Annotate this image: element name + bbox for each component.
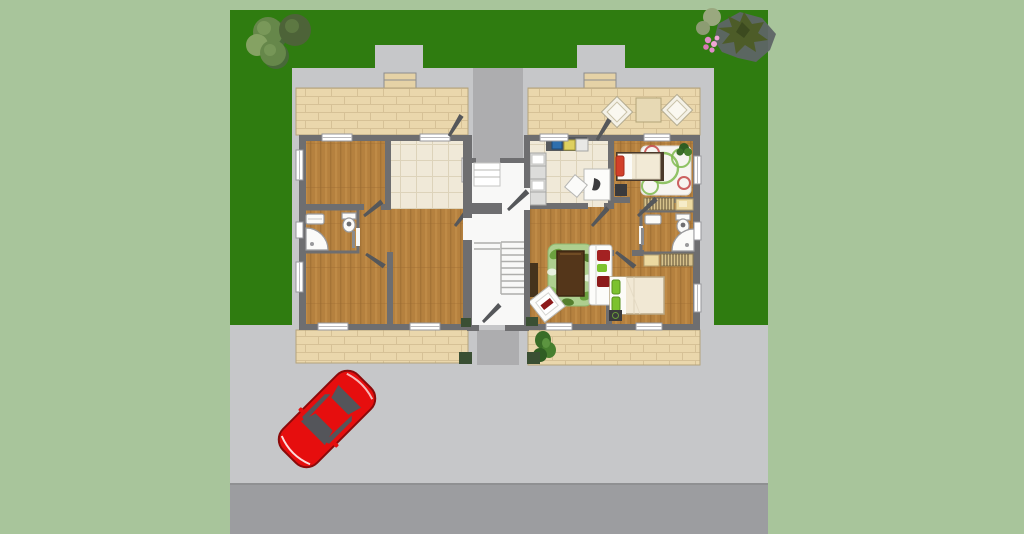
bathroom-door-leaf <box>641 228 644 245</box>
floor-plan-canvas <box>0 0 1024 534</box>
entry-steps-right <box>584 73 616 88</box>
entry-steps <box>474 163 500 186</box>
left-patio-bottom <box>296 330 468 363</box>
left-unit <box>296 88 472 363</box>
double-bed-icon <box>610 277 664 314</box>
road-edge-line <box>230 483 768 485</box>
nightstand-icon <box>615 184 627 196</box>
floor-plan-stage <box>0 0 1024 534</box>
patio-table-icon <box>636 98 661 122</box>
stair-partition <box>472 203 502 214</box>
toilet-icon <box>342 213 356 232</box>
entry-walkway-right <box>577 45 625 70</box>
center-path-bottom <box>477 330 519 365</box>
bathroom-door-leaf <box>352 231 355 248</box>
left-unit-door-opening <box>463 218 472 240</box>
wardrobe-bottom <box>644 254 693 266</box>
entry-walkway-left <box>375 45 423 70</box>
bedroom-stove-icon <box>609 310 622 321</box>
double-bedroom <box>609 277 664 321</box>
sofa-icon <box>589 245 612 305</box>
coffee-table-icon <box>557 251 584 296</box>
road <box>230 483 768 534</box>
right-unit <box>524 88 701 365</box>
sideboard-icon <box>530 263 538 297</box>
lawn-top <box>230 10 768 68</box>
sink-icon <box>645 215 661 224</box>
center-path-top <box>473 68 523 163</box>
entry-steps-left <box>384 73 416 88</box>
left-patio-top <box>296 88 468 135</box>
light-bush-icon <box>696 21 710 35</box>
left-kitchen-floor <box>391 141 463 209</box>
single-bed-icon <box>616 152 664 181</box>
